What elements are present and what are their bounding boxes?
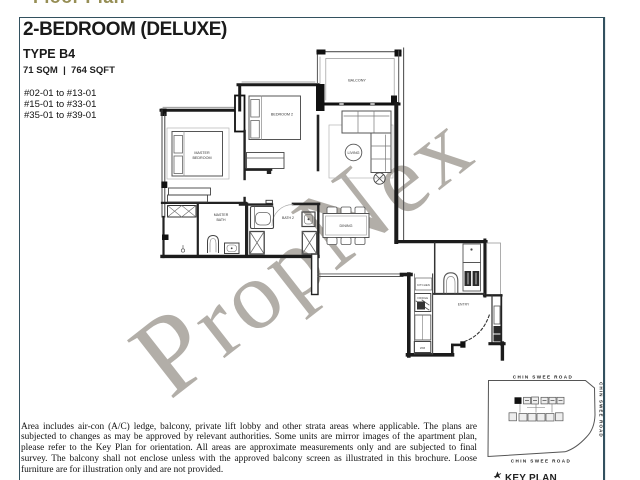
svg-text:MASTER: MASTER — [214, 213, 229, 217]
svg-text:FRIDGE: FRIDGE — [418, 296, 429, 300]
svg-text:CHIN SWEE ROAD: CHIN SWEE ROAD — [598, 382, 603, 438]
svg-text:BATH 2: BATH 2 — [282, 216, 294, 220]
svg-text:MASTER: MASTER — [194, 151, 210, 155]
svg-text:BATH: BATH — [216, 218, 226, 222]
svg-text:LIVING: LIVING — [347, 151, 359, 155]
svg-text:KEY PLAN: KEY PLAN — [505, 473, 557, 480]
svg-text:CHIN SWEE ROAD: CHIN SWEE ROAD — [513, 375, 573, 380]
svg-text:DINING: DINING — [340, 224, 353, 228]
svg-text:WM: WM — [420, 346, 426, 350]
svg-text:ENTRY: ENTRY — [458, 303, 470, 307]
svg-text:CHIN SWEE ROAD: CHIN SWEE ROAD — [511, 459, 571, 464]
svg-text:BALCONY: BALCONY — [348, 79, 366, 83]
svg-text:KITCHEN: KITCHEN — [417, 283, 430, 287]
svg-text:BEDROOM 2: BEDROOM 2 — [271, 113, 293, 117]
svg-text:BEDROOM: BEDROOM — [192, 156, 211, 160]
